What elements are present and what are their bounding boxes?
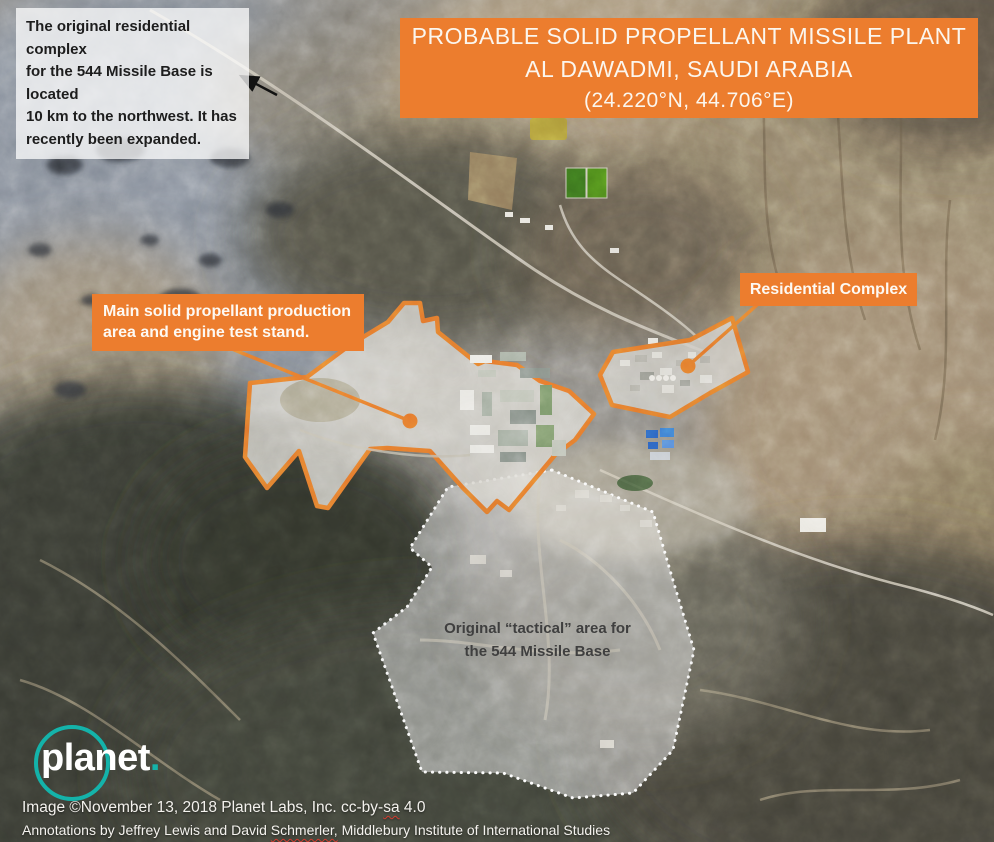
- annotation-credit-text: Annotations by Jeffrey Lewis and David: [22, 822, 271, 838]
- note-box: The original residential complex for the…: [16, 8, 249, 159]
- image-credit-text: Image ©November 13, 2018 Planet Labs, In…: [22, 799, 383, 816]
- image-credit-spellcheck: sa: [383, 799, 399, 816]
- tactical-label-line: Original “tactical” area for: [430, 618, 645, 641]
- annotation-credit-spellcheck: Schmerler,: [271, 822, 338, 838]
- title-banner: PROBABLE SOLID PROPELLANT MISSILE PLANT …: [400, 18, 978, 118]
- planet-logo-wordmark: planet.: [41, 737, 160, 780]
- main-area-label-line: Main solid propellant production: [103, 301, 353, 322]
- note-line: recently been expanded.: [26, 129, 239, 152]
- main-area-label: Main solid propellant production area an…: [92, 294, 364, 351]
- residential-label: Residential Complex: [740, 273, 917, 306]
- annotation-credit-institute: Middlebury Institute of International St…: [338, 822, 610, 838]
- note-line: 10 km to the northwest. It has: [26, 106, 239, 129]
- annotated-satellite-figure: The original residential complex for the…: [0, 0, 994, 842]
- tactical-area-label: Original “tactical” area for the 544 Mis…: [430, 618, 645, 663]
- title-line-2: AL DAWADMI, SAUDI ARABIA: [525, 53, 853, 86]
- title-line-1: PROBABLE SOLID PROPELLANT MISSILE PLANT: [412, 20, 967, 53]
- image-credit-version: 4.0: [400, 799, 426, 816]
- image-credit: Image ©November 13, 2018 Planet Labs, In…: [22, 799, 425, 817]
- residential-label-text: Residential Complex: [750, 281, 907, 299]
- note-line: The original residential complex: [26, 16, 239, 61]
- title-coordinates: (24.220°N, 44.706°E): [584, 86, 794, 116]
- planet-logo-text: planet: [41, 737, 150, 779]
- annotation-credit: Annotations by Jeffrey Lewis and David S…: [22, 822, 610, 838]
- note-line: for the 544 Missile Base is located: [26, 61, 239, 106]
- tactical-label-line: the 544 Missile Base: [430, 641, 645, 664]
- planet-logo-dot: .: [150, 737, 160, 779]
- main-area-label-line: area and engine test stand.: [103, 322, 353, 343]
